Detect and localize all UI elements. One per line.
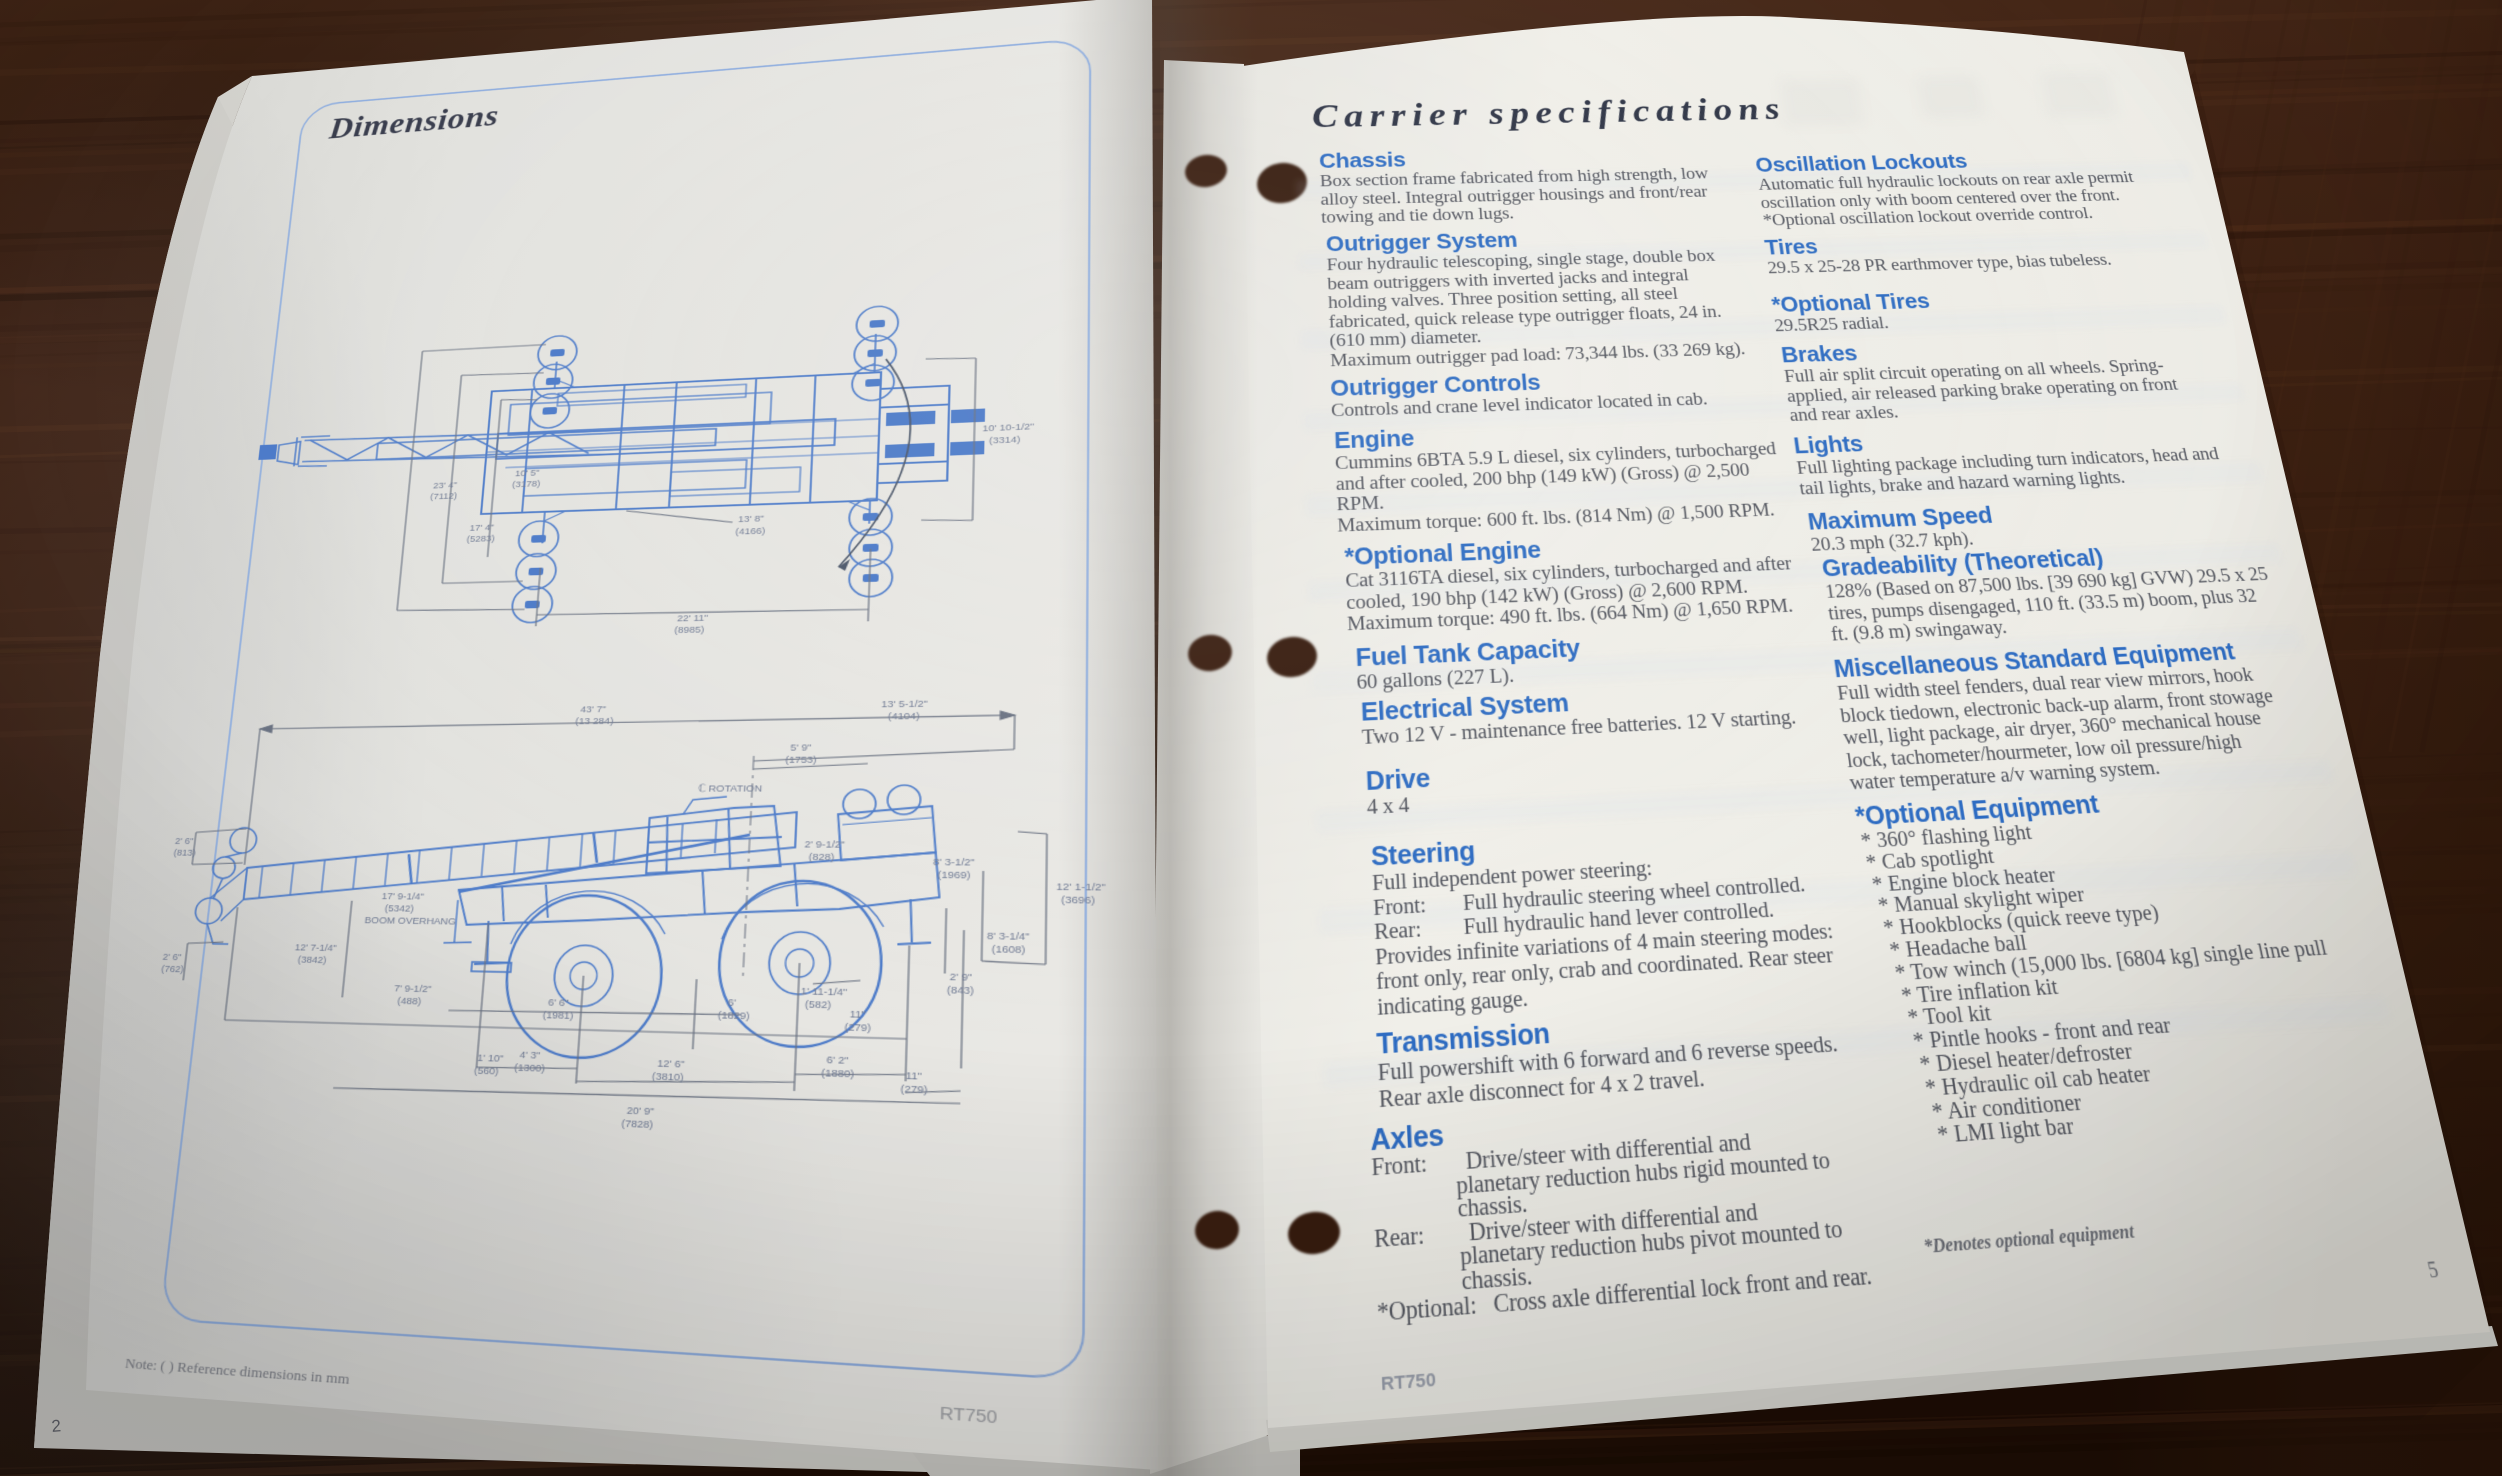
svg-text:12' 1-1/2": 12' 1-1/2" <box>1056 881 1106 893</box>
svg-text:(3842): (3842) <box>297 954 327 966</box>
svg-text:(560): (560) <box>474 1065 500 1077</box>
svg-text:22' 11": 22' 11" <box>677 613 709 624</box>
svg-text:(7112): (7112) <box>430 491 458 502</box>
svg-text:23' 4": 23' 4" <box>433 480 458 491</box>
svg-text:(1608): (1608) <box>992 943 1026 955</box>
svg-text:8' 3-1/4": 8' 3-1/4" <box>987 930 1030 943</box>
svg-text:(762): (762) <box>161 963 185 974</box>
svg-text:(3810): (3810) <box>652 1070 685 1083</box>
svg-text:2' 9-1/2": 2' 9-1/2" <box>804 839 845 851</box>
svg-text:(5342): (5342) <box>384 903 415 914</box>
svg-text:1' 11-1/4": 1' 11-1/4" <box>800 985 847 998</box>
svg-text:11": 11" <box>849 1008 865 1020</box>
svg-text:17' 9-1/4": 17' 9-1/4" <box>381 891 425 902</box>
svg-text:(13 284): (13 284) <box>575 716 614 727</box>
svg-text:(4104): (4104) <box>888 711 921 722</box>
svg-text:(4166): (4166) <box>735 526 766 537</box>
svg-text:(1981): (1981) <box>542 1009 574 1021</box>
svg-text:4' 3": 4' 3" <box>519 1049 541 1061</box>
svg-text:(279): (279) <box>900 1083 928 1096</box>
svg-text:20' 9": 20' 9" <box>626 1105 654 1118</box>
svg-text:12' 6": 12' 6" <box>657 1058 685 1071</box>
svg-text:7' 9-1/2": 7' 9-1/2" <box>394 983 433 995</box>
svg-text:(8985): (8985) <box>674 624 705 635</box>
svg-text:BOOM OVERHANG: BOOM OVERHANG <box>364 915 456 927</box>
svg-text:(843): (843) <box>947 984 975 997</box>
svg-text:(1829): (1829) <box>717 1009 750 1022</box>
svg-text:(7828): (7828) <box>621 1118 654 1131</box>
svg-text:11": 11" <box>906 1070 923 1083</box>
svg-text:(1300): (1300) <box>514 1062 546 1075</box>
svg-text:Dimensions: Dimensions <box>327 100 501 145</box>
svg-text:(5283): (5283) <box>466 533 495 544</box>
svg-text:17' 4": 17' 4" <box>469 522 494 533</box>
svg-text:2' 6": 2' 6" <box>174 836 194 847</box>
svg-text:6' 2": 6' 2" <box>826 1054 849 1067</box>
svg-text:12' 7-1/4": 12' 7-1/4" <box>294 942 337 954</box>
svg-text:6' 6": 6' 6" <box>548 997 570 1009</box>
svg-text:(3178): (3178) <box>512 479 541 490</box>
svg-text:(813): (813) <box>173 847 197 858</box>
svg-text:8' 3-1/2": 8' 3-1/2" <box>933 856 975 868</box>
svg-text:(488): (488) <box>397 995 422 1007</box>
svg-text:(3696): (3696) <box>1061 894 1096 906</box>
svg-text:6': 6' <box>727 997 736 1009</box>
svg-text:10' 10-1/2": 10' 10-1/2" <box>982 421 1034 434</box>
svg-text:(582): (582) <box>805 998 832 1010</box>
svg-text:(1969): (1969) <box>937 869 971 881</box>
svg-text:(1880): (1880) <box>821 1067 855 1080</box>
svg-text:2' 9": 2' 9" <box>949 971 972 983</box>
svg-text:RT750: RT750 <box>939 1403 997 1428</box>
svg-text:43' 7": 43' 7" <box>580 704 606 715</box>
svg-text:ℂ ROTATION: ℂ ROTATION <box>698 783 763 794</box>
svg-text:5' 9": 5' 9" <box>790 742 812 753</box>
svg-text:1' 10": 1' 10" <box>477 1052 504 1064</box>
svg-text:(279): (279) <box>844 1021 871 1034</box>
svg-text:(1753): (1753) <box>785 754 817 765</box>
svg-text:(3314): (3314) <box>989 434 1021 446</box>
svg-text:13' 8": 13' 8" <box>738 513 765 524</box>
svg-text:10' 5": 10' 5" <box>515 468 540 479</box>
svg-text:13' 5-1/2": 13' 5-1/2" <box>881 698 928 710</box>
svg-text:2' 6": 2' 6" <box>162 951 182 962</box>
svg-text:Note: ( ) Reference dimensions: Note: ( ) Reference dimensions in mm <box>124 1356 350 1388</box>
svg-text:(828): (828) <box>808 851 835 863</box>
